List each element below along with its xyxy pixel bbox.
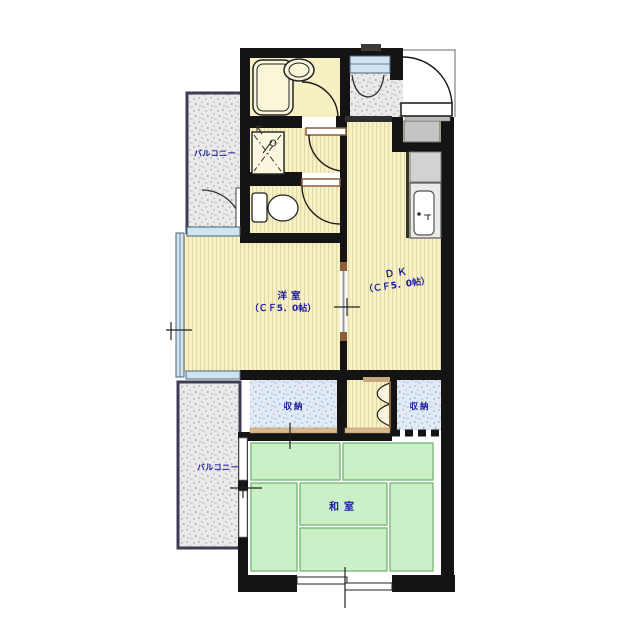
wash-basin [284, 59, 314, 81]
sliding-door-cap-top [340, 262, 347, 271]
wall-storage-divider-1 [337, 378, 347, 434]
wall-bath-bottom-left [240, 116, 302, 128]
entrance-vent-block [361, 44, 381, 51]
storage-right-label: 収納 [409, 401, 430, 412]
western-room-label: 洋室 [277, 290, 304, 302]
tatami-mat [390, 483, 433, 571]
wall-east [441, 117, 454, 592]
balcony-lower-label: バルコニー [197, 463, 239, 472]
washroom-door-frame [306, 128, 346, 135]
wall-west-column [240, 48, 250, 243]
wall-washitsu-top [240, 432, 392, 441]
threshold-left [250, 428, 337, 433]
threshold-middle [345, 428, 390, 433]
floor-plan-drawing: バルコニー バルコニー 洋室 （ＣＦ5．0帖） ＤＫ （ＣＦ5．0帖） 収納 収… [0, 0, 639, 640]
entrance-step-edge [345, 116, 392, 122]
entrance-door-leaf [401, 103, 452, 116]
wall-bottom-left [238, 575, 297, 592]
tatami-mat [300, 528, 387, 571]
toilet-door-frame [302, 179, 340, 186]
sliding-door-cap-bottom [340, 332, 347, 341]
stove-counter [404, 121, 440, 142]
entrance-window [350, 56, 390, 73]
kitchen-counter [410, 152, 441, 182]
balcony-upper [187, 93, 242, 233]
storage-left-label: 収納 [283, 401, 304, 412]
sink-bowl [414, 191, 434, 235]
wall-entrance-pillar [390, 48, 403, 80]
washitsu-west-window-1 [239, 438, 247, 480]
balcony-window-upper [187, 227, 240, 236]
wall-toilet-bottom [240, 233, 347, 243]
western-room-south-window [186, 371, 240, 379]
washitsu-south-window-pane-2 [345, 583, 392, 590]
wall-bath-entrance [340, 48, 350, 120]
tatami-mat [251, 443, 340, 480]
closet-lintel [363, 377, 390, 382]
floor-plan-page: バルコニー バルコニー 洋室 （ＣＦ5．0帖） ＤＫ （ＣＦ5．0帖） 収納 収… [0, 0, 639, 640]
washing-machine-pan [252, 126, 284, 174]
balcony-upper-label: バルコニー [194, 149, 236, 158]
washitsu-south-window-pane-1 [297, 577, 347, 584]
tatami-mat [343, 443, 433, 480]
sink-faucet [417, 212, 421, 216]
wall-central-upper [340, 125, 347, 264]
wall-storage-divider-2 [390, 378, 397, 434]
toilet [252, 193, 298, 222]
western-room-size-label: （ＣＦ5．0帖） [250, 302, 317, 314]
japanese-room-label: 和室 [328, 500, 359, 513]
tatami-mat [251, 483, 297, 571]
